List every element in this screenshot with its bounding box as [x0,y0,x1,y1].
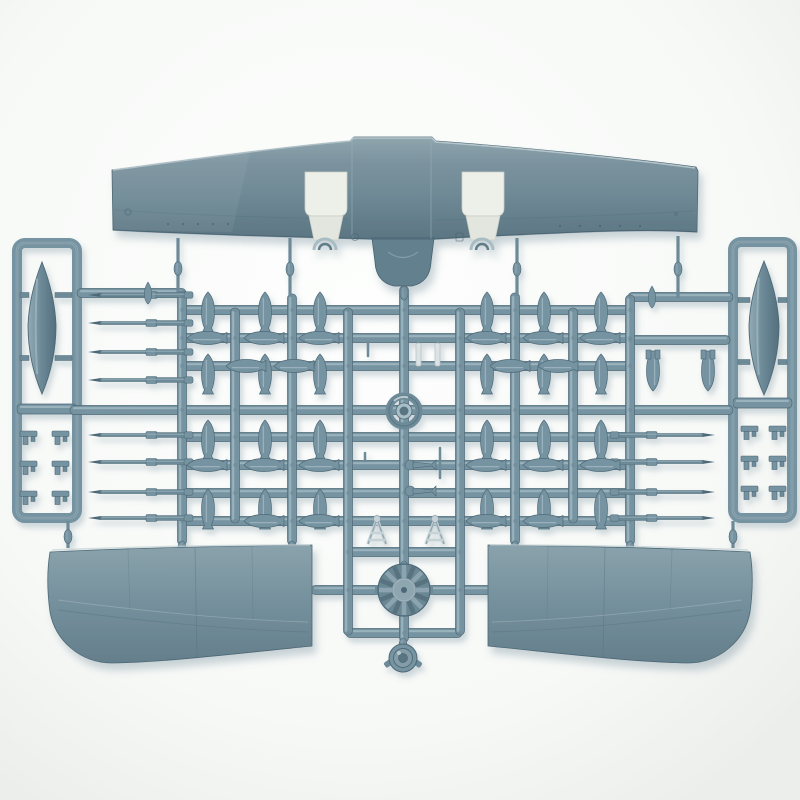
runner-junction [180,408,184,412]
runner-junction [571,491,575,495]
runner-junction [458,336,462,340]
runner-junction [458,463,462,467]
sprue-runner-vertical [288,294,297,545]
runner-junction [346,631,350,635]
runner-junction [458,550,462,554]
runner-junction [290,519,294,523]
runner-junction [628,295,632,299]
sprue-runner-vertical [344,308,353,635]
housing-highlight [397,651,401,655]
runner-junction [346,435,350,439]
frame-crossbar [733,398,792,408]
bomb-fin [710,350,715,359]
clear-small-part [435,343,440,366]
runner-junction [628,408,632,412]
tank-attachment-stub [778,360,787,365]
runner-junction [346,408,350,412]
runner-junction [458,435,462,439]
runner-junction [513,435,517,439]
runner-junction [458,588,462,592]
sprue-runner-horizontal [628,293,733,302]
runner-junction [571,336,575,340]
clear-small-part [416,343,421,366]
runner-junction [290,435,294,439]
runner-junction [346,588,350,592]
runner-junction [233,519,237,523]
runner-junction [233,408,237,412]
tank-attachment-stub [778,298,787,303]
frame-crossbar [17,404,77,414]
runner-junction [458,491,462,495]
runner-junction [233,435,237,439]
runner-junction [402,364,406,368]
runner-junction [571,519,575,523]
tank-attachment-stub [20,356,29,361]
runner-junction [346,364,350,368]
runner-junction [346,336,350,340]
tank-attachment-stub [55,293,72,298]
tank-attachment-stub [738,298,750,303]
sprue-runner-vertical [626,295,635,545]
sprue-runner-vertical [456,308,465,635]
tank-attachment-stub [20,293,29,298]
bomb-fin [646,350,651,359]
runner-junction [458,519,462,523]
crossbar-highlight [20,406,74,408]
runner-junction [571,463,575,467]
runner-junction [571,308,575,312]
runner-junction [180,308,184,312]
runner-junction [513,408,517,412]
runner-junction [346,308,350,312]
runner-junction [233,463,237,467]
tank-attachment-stub [738,360,750,365]
runner-junction [628,338,632,342]
runner-junction [290,336,294,340]
runner-junction [571,435,575,439]
runner-junction [402,550,406,554]
model-kit-sprue-photo [0,0,800,800]
runner-junction [290,408,294,412]
runner-junction [290,491,294,495]
wing-panel-left [48,545,312,663]
runner-junction [402,336,406,340]
runner-junction [346,550,350,554]
runner-junction [402,519,406,523]
runner-junction [513,491,517,495]
runner-junction [290,463,294,467]
runner-junction [233,491,237,495]
runner-junction [458,631,462,635]
sprue-runner-vertical [231,308,240,523]
runner-junction [233,336,237,340]
runner-junction [628,364,632,368]
runner-junction [180,364,184,368]
runner-junction [513,519,517,523]
runner-junction [513,336,517,340]
runner-junction [233,308,237,312]
runner-junction [346,519,350,523]
crossbar-highlight [736,400,789,402]
sprue-runner-vertical [178,291,187,545]
sprue-runner-vertical [511,293,520,545]
runner-junction [290,308,294,312]
sprue-runner-horizontal [630,336,730,345]
runner-junction [402,435,406,439]
runner-junction [402,308,406,312]
wing-belly-fairing [372,238,434,286]
runner-junction [458,364,462,368]
runner-junction [402,631,406,635]
runner-junction [458,308,462,312]
bomb-fin [701,350,706,359]
tank-attachment-stub [55,356,72,361]
runner-junction [346,463,350,467]
wing-panel-right [488,545,752,663]
runner-junction [513,463,517,467]
runner-junction [513,308,517,312]
bomb-fin [655,350,660,359]
runner-junction [628,308,632,312]
runner-junction [346,491,350,495]
sprue-scene [0,0,800,800]
runner-junction [458,408,462,412]
runner-junction [571,408,575,412]
sprue-runner-vertical [569,308,578,523]
runner-junction [180,336,184,340]
